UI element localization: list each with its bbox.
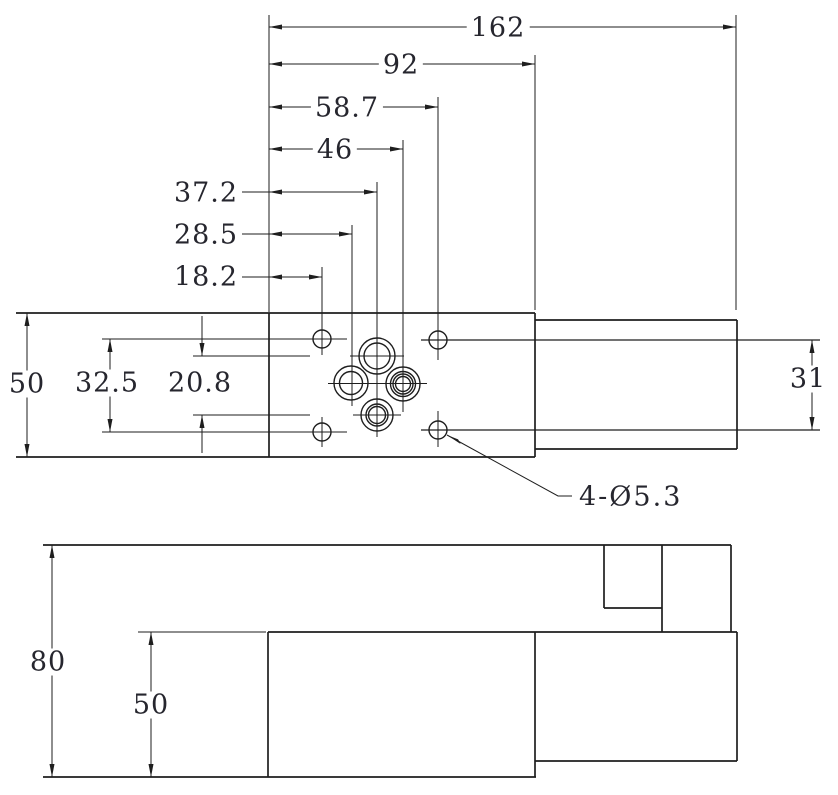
dim-58-7: 58.7 (311, 95, 383, 122)
dim-18-2: 18.2 (170, 264, 242, 291)
dimension-arrowheads (25, 25, 815, 778)
dim-31: 31 (786, 366, 830, 393)
hole-callout: 4-Ø5.3 (575, 484, 686, 511)
dim-50-width: 50 (5, 371, 49, 398)
dim-32-5: 32.5 (71, 370, 143, 397)
dim-162: 162 (467, 15, 530, 42)
front-view-outline (43, 545, 737, 777)
dimension-lines (27, 15, 812, 777)
dim-46: 46 (313, 137, 357, 164)
dim-50-height: 50 (129, 692, 173, 719)
dim-80: 80 (26, 649, 70, 676)
top-view-feature-lines (421, 340, 820, 430)
dim-92: 92 (379, 52, 423, 79)
mounting-holes (313, 330, 447, 441)
drawing-sheet: 162 92 58.7 46 37.2 28.5 18.2 50 32.5 20… (0, 0, 838, 795)
dim-28-5: 28.5 (170, 222, 242, 249)
dim-20-8: 20.8 (164, 370, 236, 397)
dim-37-2: 37.2 (170, 180, 242, 207)
